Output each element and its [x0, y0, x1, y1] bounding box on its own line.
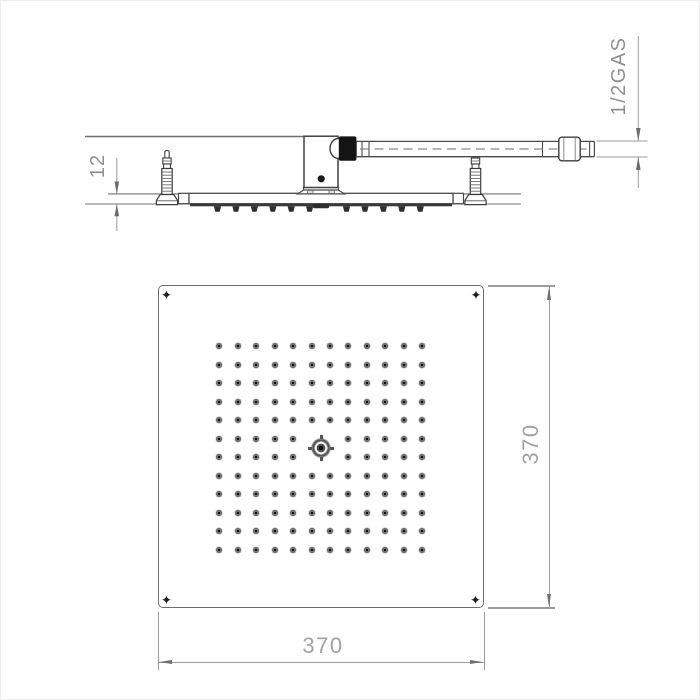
side-view: 1/2GAS 12: [1, 1, 700, 251]
spray-bump: [306, 206, 313, 211]
nozzle: [363, 398, 371, 406]
nozzle: [363, 472, 371, 480]
nozzle: [418, 546, 426, 554]
gas-dim-label: 1/2GAS: [608, 36, 630, 115]
elbow-screw-dot: [318, 175, 325, 182]
nozzle: [215, 509, 223, 517]
nozzle: [363, 509, 371, 517]
nozzle: [271, 361, 279, 369]
plate-left-cap: [179, 193, 190, 203]
spray-bump: [251, 206, 258, 211]
nozzle: [234, 453, 242, 461]
nozzle: [308, 379, 316, 387]
nozzle: [289, 361, 297, 369]
nozzle: [326, 361, 334, 369]
nozzle: [400, 527, 408, 535]
nozzle: [234, 342, 242, 350]
flange-notch-right: [329, 190, 335, 193]
nozzle: [400, 435, 408, 443]
nozzle: [215, 435, 223, 443]
width-dim-label: 370: [302, 633, 343, 659]
nozzle: [234, 490, 242, 498]
nozzle: [418, 379, 426, 387]
spray-bump: [361, 206, 368, 211]
height-dim-ext-top: [488, 285, 555, 286]
central-nozzle-tick: [330, 447, 334, 450]
nozzle: [344, 472, 352, 480]
nozzle: [418, 472, 426, 480]
nozzle: [326, 416, 334, 424]
nozzle: [289, 509, 297, 517]
corner-screw-icon: ✦: [161, 594, 172, 607]
nozzle: [363, 435, 371, 443]
nozzle: [326, 342, 334, 350]
nozzle: [363, 416, 371, 424]
nozzle: [326, 472, 334, 480]
nozzle: [234, 398, 242, 406]
nozzle: [308, 416, 316, 424]
nozzle: [344, 361, 352, 369]
nozzle: [363, 453, 371, 461]
width-dim-arrow-right: [470, 660, 483, 664]
nozzle: [252, 398, 260, 406]
nozzle: [326, 546, 334, 554]
height-dim-line: [549, 286, 550, 608]
central-nozzle-tick: [320, 435, 323, 439]
nozzle: [234, 416, 242, 424]
nozzle: [289, 435, 297, 443]
nozzle: [271, 416, 279, 424]
height-dim-ext-bottom: [488, 607, 555, 608]
spray-bump: [288, 206, 295, 211]
center-nozzle-side: [313, 204, 329, 209]
nozzle: [308, 342, 316, 350]
spray-bump: [214, 206, 221, 211]
nozzle: [326, 527, 334, 535]
nozzle: [215, 546, 223, 554]
spray-bump: [269, 206, 276, 211]
height-dim-label: 370: [518, 423, 544, 464]
nozzle: [234, 472, 242, 480]
nozzle: [381, 546, 389, 554]
nozzle: [234, 509, 242, 517]
nozzle: [215, 472, 223, 480]
corner-screw-icon: ✦: [471, 288, 482, 301]
nozzle: [418, 361, 426, 369]
elbow-black-fitting: [339, 136, 357, 160]
nozzle: [381, 361, 389, 369]
nozzle: [308, 361, 316, 369]
nozzle: [418, 509, 426, 517]
spray-bump: [417, 206, 424, 211]
nozzle: [308, 472, 316, 480]
nozzle: [418, 342, 426, 350]
spray-bump: [232, 206, 239, 211]
nozzle: [271, 398, 279, 406]
nozzle: [418, 527, 426, 535]
width-dim-arrow-left: [159, 660, 172, 664]
nozzle: [234, 435, 242, 443]
nozzle: [381, 435, 389, 443]
nozzle: [363, 361, 371, 369]
nozzle: [271, 379, 279, 387]
nozzle: [363, 546, 371, 554]
nozzle: [418, 490, 426, 498]
nozzle: [271, 453, 279, 461]
nozzle: [363, 527, 371, 535]
nozzle: [252, 509, 260, 517]
nozzle: [252, 435, 260, 443]
nozzle: [363, 379, 371, 387]
nozzle: [215, 361, 223, 369]
flange-base: [298, 190, 345, 194]
nozzle: [308, 546, 316, 554]
spray-bump: [398, 206, 405, 211]
thickness-dim-arrow-up: [115, 204, 120, 216]
nozzle: [326, 398, 334, 406]
ceiling-anchor-left: [156, 151, 177, 205]
gas-dim-arrow-down: [636, 128, 641, 141]
nozzle: [271, 435, 279, 443]
nozzle: [381, 509, 389, 517]
gas-dim-arrow-up: [636, 157, 641, 170]
nozzle: [400, 472, 408, 480]
nozzle: [271, 490, 279, 498]
nozzle: [400, 342, 408, 350]
plate-body: [189, 193, 453, 203]
plate-right-cap: [453, 193, 464, 203]
nozzle: [418, 416, 426, 424]
height-dim-arrow-down: [547, 594, 551, 607]
nozzle: [215, 398, 223, 406]
nozzle: [271, 472, 279, 480]
nozzle: [418, 453, 426, 461]
nozzle: [400, 398, 408, 406]
drawing-canvas: 1/2GAS 12 ✦ ✦ ✦ ✦ 370 370: [0, 0, 700, 700]
nozzle: [400, 509, 408, 517]
nozzle: [308, 490, 316, 498]
central-nozzle-tick: [308, 447, 312, 450]
nozzle: [271, 527, 279, 535]
nozzle: [271, 546, 279, 554]
nozzle: [400, 361, 408, 369]
flange-notch-left: [308, 190, 314, 193]
nozzle: [381, 472, 389, 480]
nozzle: [234, 379, 242, 387]
nozzle: [363, 342, 371, 350]
nozzle: [289, 398, 297, 406]
nozzle: [363, 490, 371, 498]
corner-screw-icon: ✦: [470, 594, 481, 607]
nozzle: [418, 398, 426, 406]
width-dim-line: [158, 662, 484, 663]
nozzle: [234, 527, 242, 535]
spray-bump: [343, 206, 350, 211]
nozzle: [271, 342, 279, 350]
nozzle: [308, 398, 316, 406]
nozzle: [308, 527, 316, 535]
corner-screw-icon: ✦: [161, 289, 172, 302]
nozzle: [252, 361, 260, 369]
nozzle: [326, 490, 334, 498]
nozzle: [400, 453, 408, 461]
nozzle: [271, 509, 279, 517]
spray-bump: [380, 206, 387, 211]
nozzle: [289, 546, 297, 554]
nozzle: [344, 509, 352, 517]
nozzle: [344, 546, 352, 554]
nozzle: [400, 546, 408, 554]
thickness-dim-label: 12: [87, 154, 109, 178]
central-nozzle-tick: [320, 457, 323, 461]
nozzle: [381, 398, 389, 406]
nozzle: [326, 379, 334, 387]
thickness-dim-arrow-down: [115, 182, 120, 194]
nozzle: [400, 490, 408, 498]
nozzle: [234, 361, 242, 369]
nozzle: [289, 472, 297, 480]
nozzle: [252, 472, 260, 480]
nozzle: [400, 379, 408, 387]
nozzle: [418, 435, 426, 443]
nozzle: [326, 509, 334, 517]
ceiling-anchor-right: [465, 151, 486, 205]
nozzle: [308, 509, 316, 517]
central-nozzle: [308, 435, 334, 461]
pipe-nut: [559, 137, 580, 161]
height-dim-arrow-up: [547, 287, 551, 300]
nozzle: [344, 435, 352, 443]
nozzle: [234, 546, 242, 554]
nozzle: [400, 416, 408, 424]
nozzle: [252, 546, 260, 554]
nozzle: [344, 398, 352, 406]
